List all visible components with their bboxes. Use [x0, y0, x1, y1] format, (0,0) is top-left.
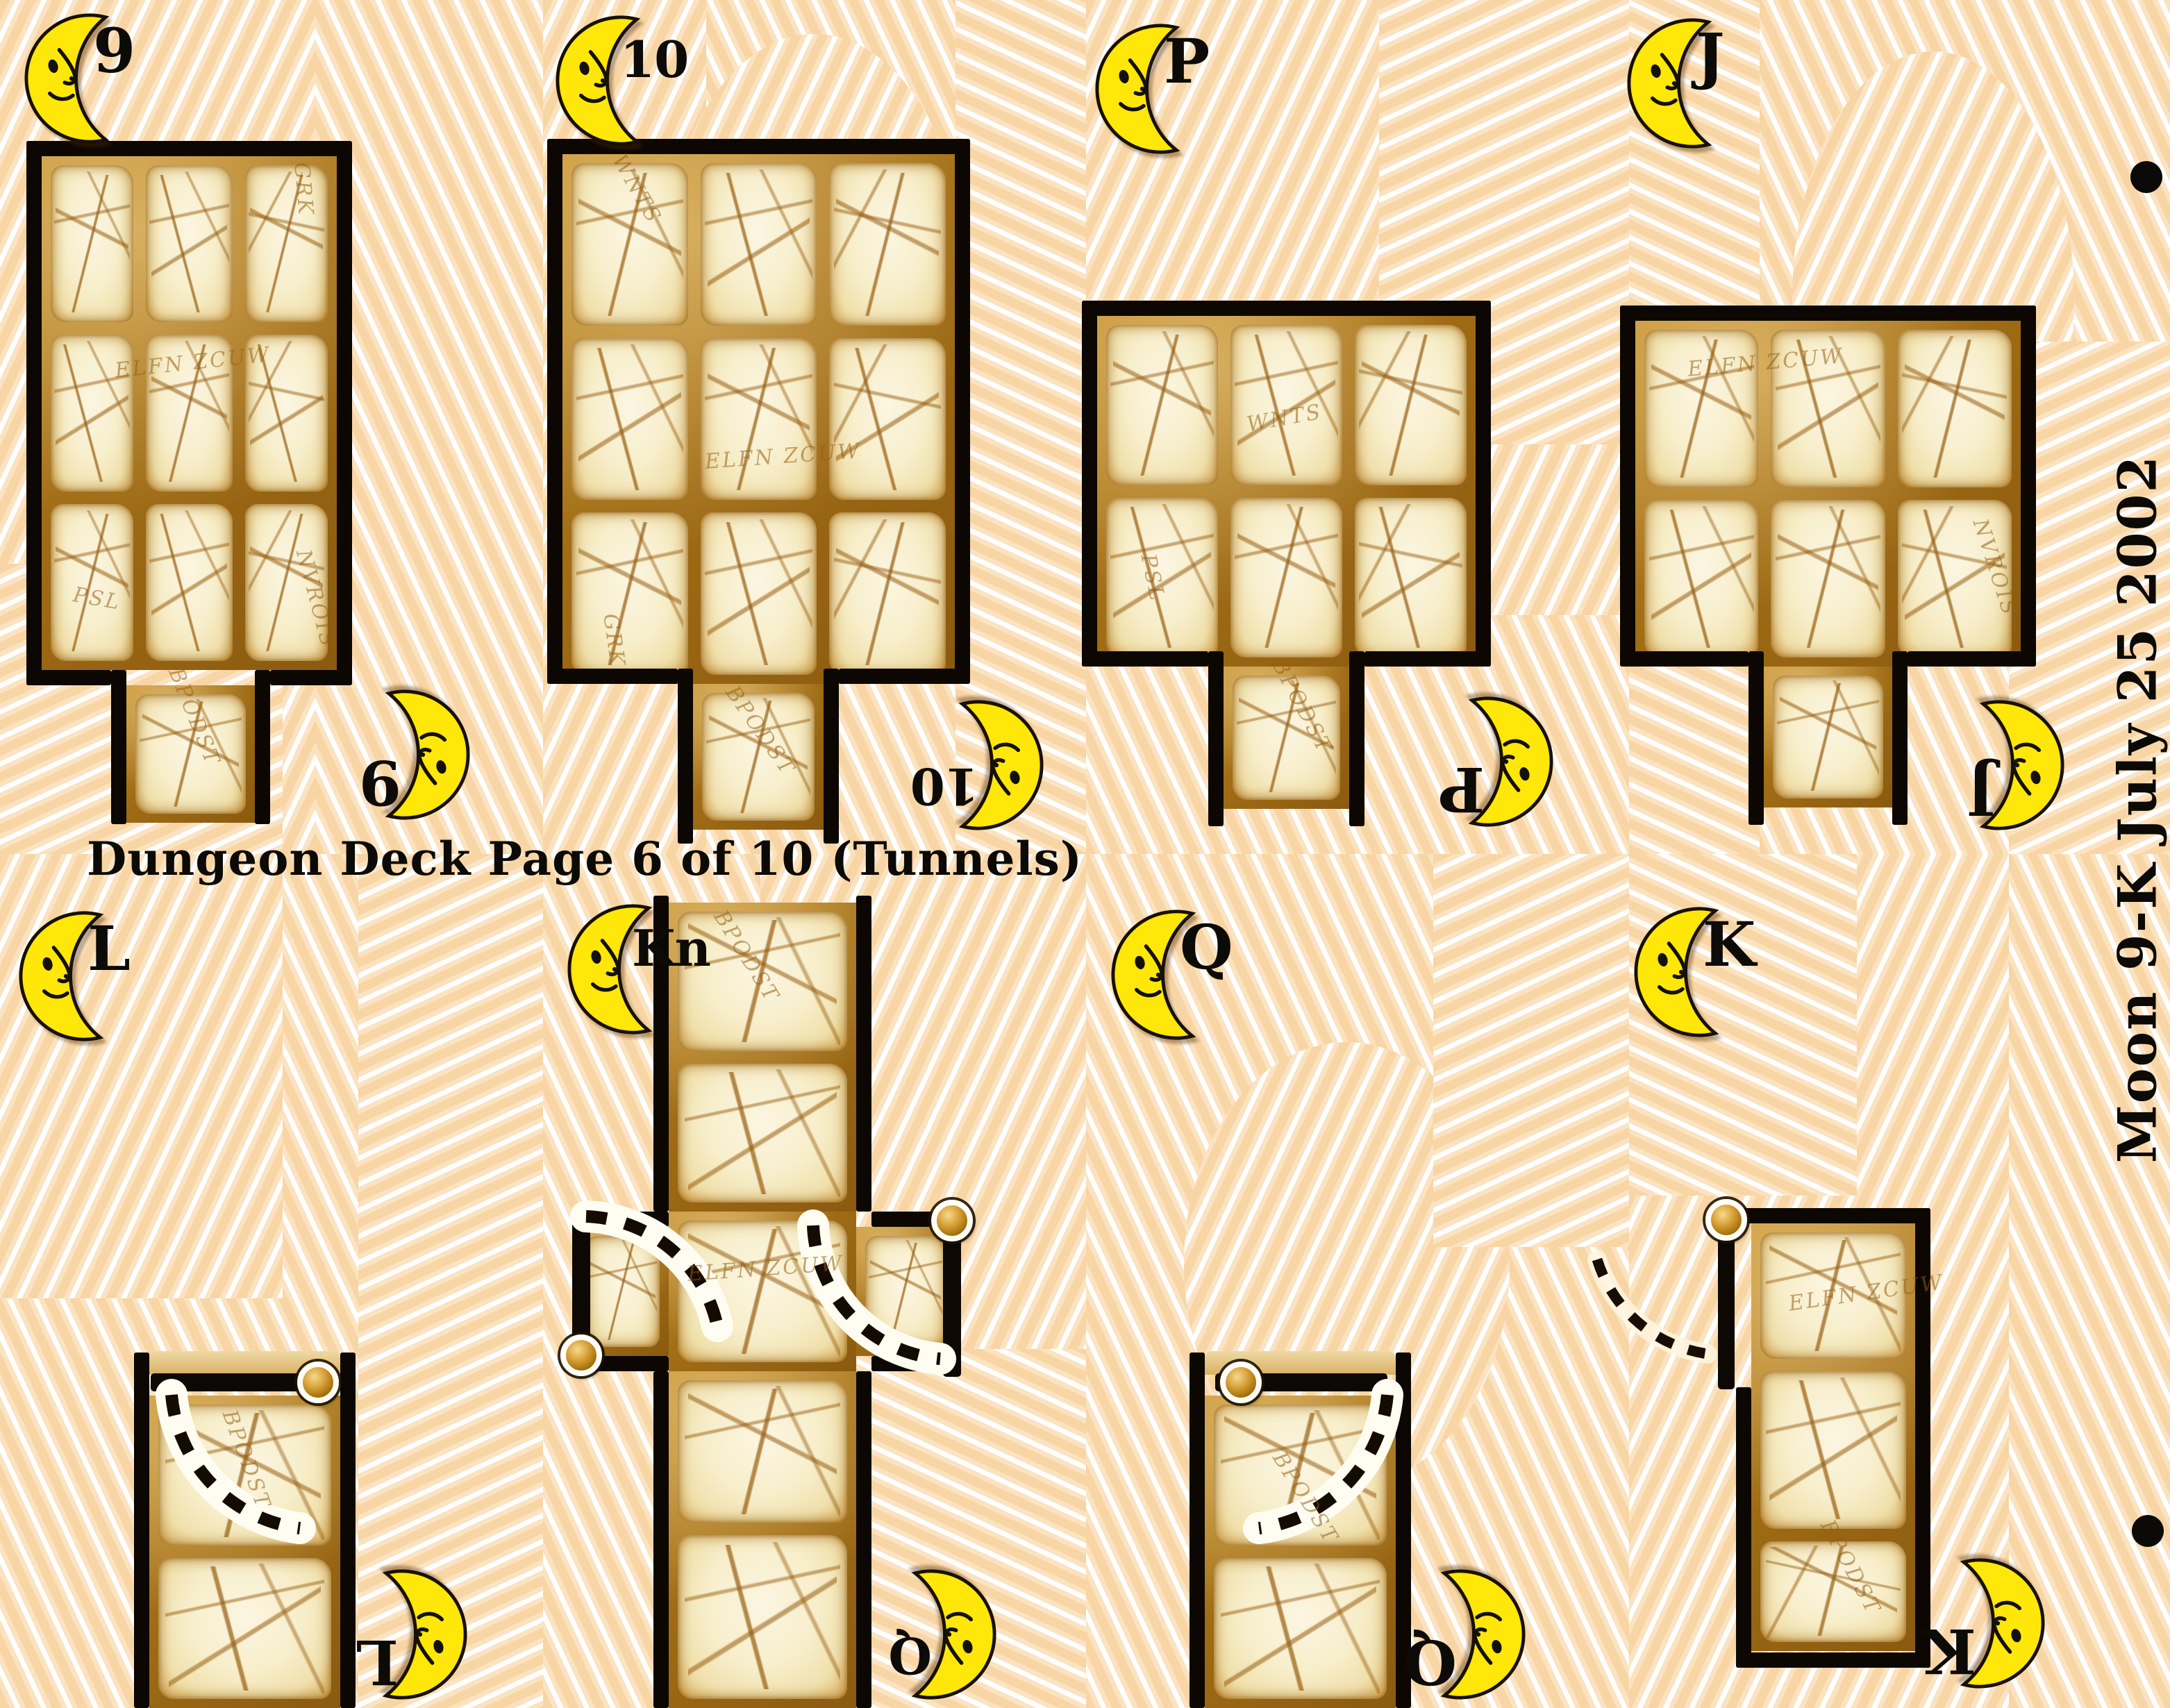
- stone-tile: [585, 1236, 660, 1347]
- card-rank-label: 10: [911, 761, 979, 811]
- dungeon-tunnel: [669, 1212, 856, 1371]
- stone-tile: [678, 1221, 847, 1362]
- stone-tile: [1355, 325, 1467, 485]
- card-rank-badge-inverted: Q: [1355, 1564, 1529, 1702]
- door-hinge-icon: [297, 1362, 339, 1403]
- card-rank-label: Kn: [632, 923, 710, 973]
- card-rank-label: Q: [889, 1630, 932, 1680]
- dungeon-tunnel: [1764, 667, 1892, 807]
- door-hinge-icon: [560, 1334, 602, 1376]
- wall: [1620, 651, 1748, 667]
- wall: [1736, 1387, 1751, 1668]
- wall: [678, 669, 693, 844]
- card-rank-badge-inverted: L: [297, 1564, 471, 1702]
- wall: [1190, 1353, 1205, 1708]
- card-rank-badge: Q: [1108, 907, 1281, 1046]
- card-rank-label: 9: [360, 752, 401, 813]
- card-sheet: 9 10 P J L Kn Q K 9 10 P J: [0, 0, 2170, 1708]
- card-rank-label: 10: [620, 35, 688, 85]
- card-rank-badge: 9: [21, 10, 194, 149]
- card-rank-label: J: [1968, 762, 1996, 823]
- card-rank-label: L: [87, 918, 129, 979]
- wall: [590, 1356, 669, 1371]
- card-rank-badge-inverted: 10: [874, 694, 1047, 833]
- stone-tile: [571, 338, 688, 501]
- stone-tile: [678, 1380, 847, 1523]
- dungeon-tunnel: [856, 1227, 955, 1356]
- stone-tile: [829, 512, 946, 675]
- card-rank-label: Q: [1180, 916, 1232, 978]
- stone-tile: [1106, 325, 1218, 485]
- card-rank-badge-inverted: Q: [826, 1564, 1000, 1702]
- wall: [590, 1212, 669, 1227]
- card-rank-badge-inverted: J: [1894, 694, 2068, 833]
- wall: [26, 141, 42, 685]
- wall: [856, 896, 871, 1212]
- stone-tile: [829, 338, 946, 501]
- card-rank-badge: K: [1630, 904, 1804, 1043]
- stone-tile: [678, 1535, 847, 1699]
- wall: [1082, 651, 1208, 667]
- stone-tile: [146, 504, 233, 661]
- wall: [1736, 1208, 1930, 1223]
- wall: [1082, 301, 1491, 316]
- wall: [270, 670, 352, 685]
- card-rank-label: P: [1164, 31, 1208, 92]
- card-rank-badge-inverted: P: [1383, 691, 1557, 830]
- stone-tile: [678, 1064, 847, 1203]
- stone-tile: [701, 163, 817, 326]
- wall: [1082, 301, 1097, 667]
- wall: [547, 139, 562, 684]
- stone-tile: [829, 163, 946, 326]
- wall: [337, 141, 352, 685]
- card-rank-label: K: [1925, 1621, 1976, 1682]
- stone-tile: [1230, 498, 1342, 658]
- stone-tile: [1773, 676, 1883, 798]
- card-rank-label: L: [357, 1632, 399, 1693]
- wall: [26, 670, 111, 685]
- wall: [1620, 305, 2036, 321]
- stone-tile: [51, 504, 133, 661]
- card-rank-label: J: [1696, 25, 1724, 86]
- stone-tile: [701, 512, 817, 675]
- wall: [547, 669, 678, 684]
- door-hinge-icon: [931, 1200, 973, 1241]
- dungeon-room: [1097, 316, 1476, 667]
- card-rank-label: K: [1703, 914, 1754, 975]
- wall: [1908, 651, 2036, 667]
- wall: [1476, 301, 1491, 667]
- registration-dot-icon: [2132, 1515, 2164, 1547]
- wall: [839, 669, 970, 684]
- card-rank-badge: 10: [552, 12, 726, 151]
- stone-tile: [1898, 330, 2012, 487]
- card-rank-badge-inverted: 9: [300, 684, 474, 823]
- stone-tile: [865, 1236, 946, 1347]
- wall: [1620, 305, 1635, 667]
- card-rank-badge: P: [1092, 21, 1265, 160]
- card-rank-badge-inverted: K: [1875, 1552, 2048, 1691]
- wall: [255, 670, 270, 824]
- stone-tile: [571, 512, 688, 675]
- card-rank-label: P: [1440, 759, 1485, 820]
- stone-tile: [701, 338, 817, 501]
- wall: [134, 1353, 149, 1708]
- stone-tile: [1644, 500, 1758, 658]
- dungeon-tunnel: [693, 684, 824, 830]
- stone-tile: [146, 165, 233, 322]
- wall: [111, 670, 126, 824]
- card-rank-label: 9: [93, 20, 134, 81]
- stone-tile: [51, 165, 133, 322]
- card-rank-badge: J: [1624, 15, 1797, 154]
- door-hinge-icon: [1220, 1362, 1262, 1403]
- wall: [1748, 651, 1764, 825]
- registration-dot-icon: [2130, 161, 2162, 193]
- wall: [824, 669, 839, 844]
- card-rank-label: Q: [1405, 1632, 1457, 1693]
- door-hinge-icon: [1705, 1199, 1747, 1241]
- wall: [955, 139, 970, 684]
- wall: [1208, 651, 1224, 826]
- wall: [653, 1371, 669, 1708]
- dungeon-room: [562, 154, 955, 684]
- wall: [1364, 651, 1491, 667]
- wall: [1349, 651, 1364, 826]
- side-label: Moon 9-K July 25 2002: [2107, 455, 2169, 1164]
- rune-scribble: GRK: [289, 161, 318, 217]
- stone-tile: [1771, 500, 1885, 658]
- wall: [871, 1356, 943, 1371]
- stone-tile: [1760, 1371, 1906, 1529]
- stone-tile: [1355, 498, 1467, 658]
- card-rank-badge: L: [15, 908, 189, 1047]
- wall: [2021, 305, 2036, 667]
- page-title: Dungeon Deck Page 6 of 10 (Tunnels): [87, 832, 1083, 886]
